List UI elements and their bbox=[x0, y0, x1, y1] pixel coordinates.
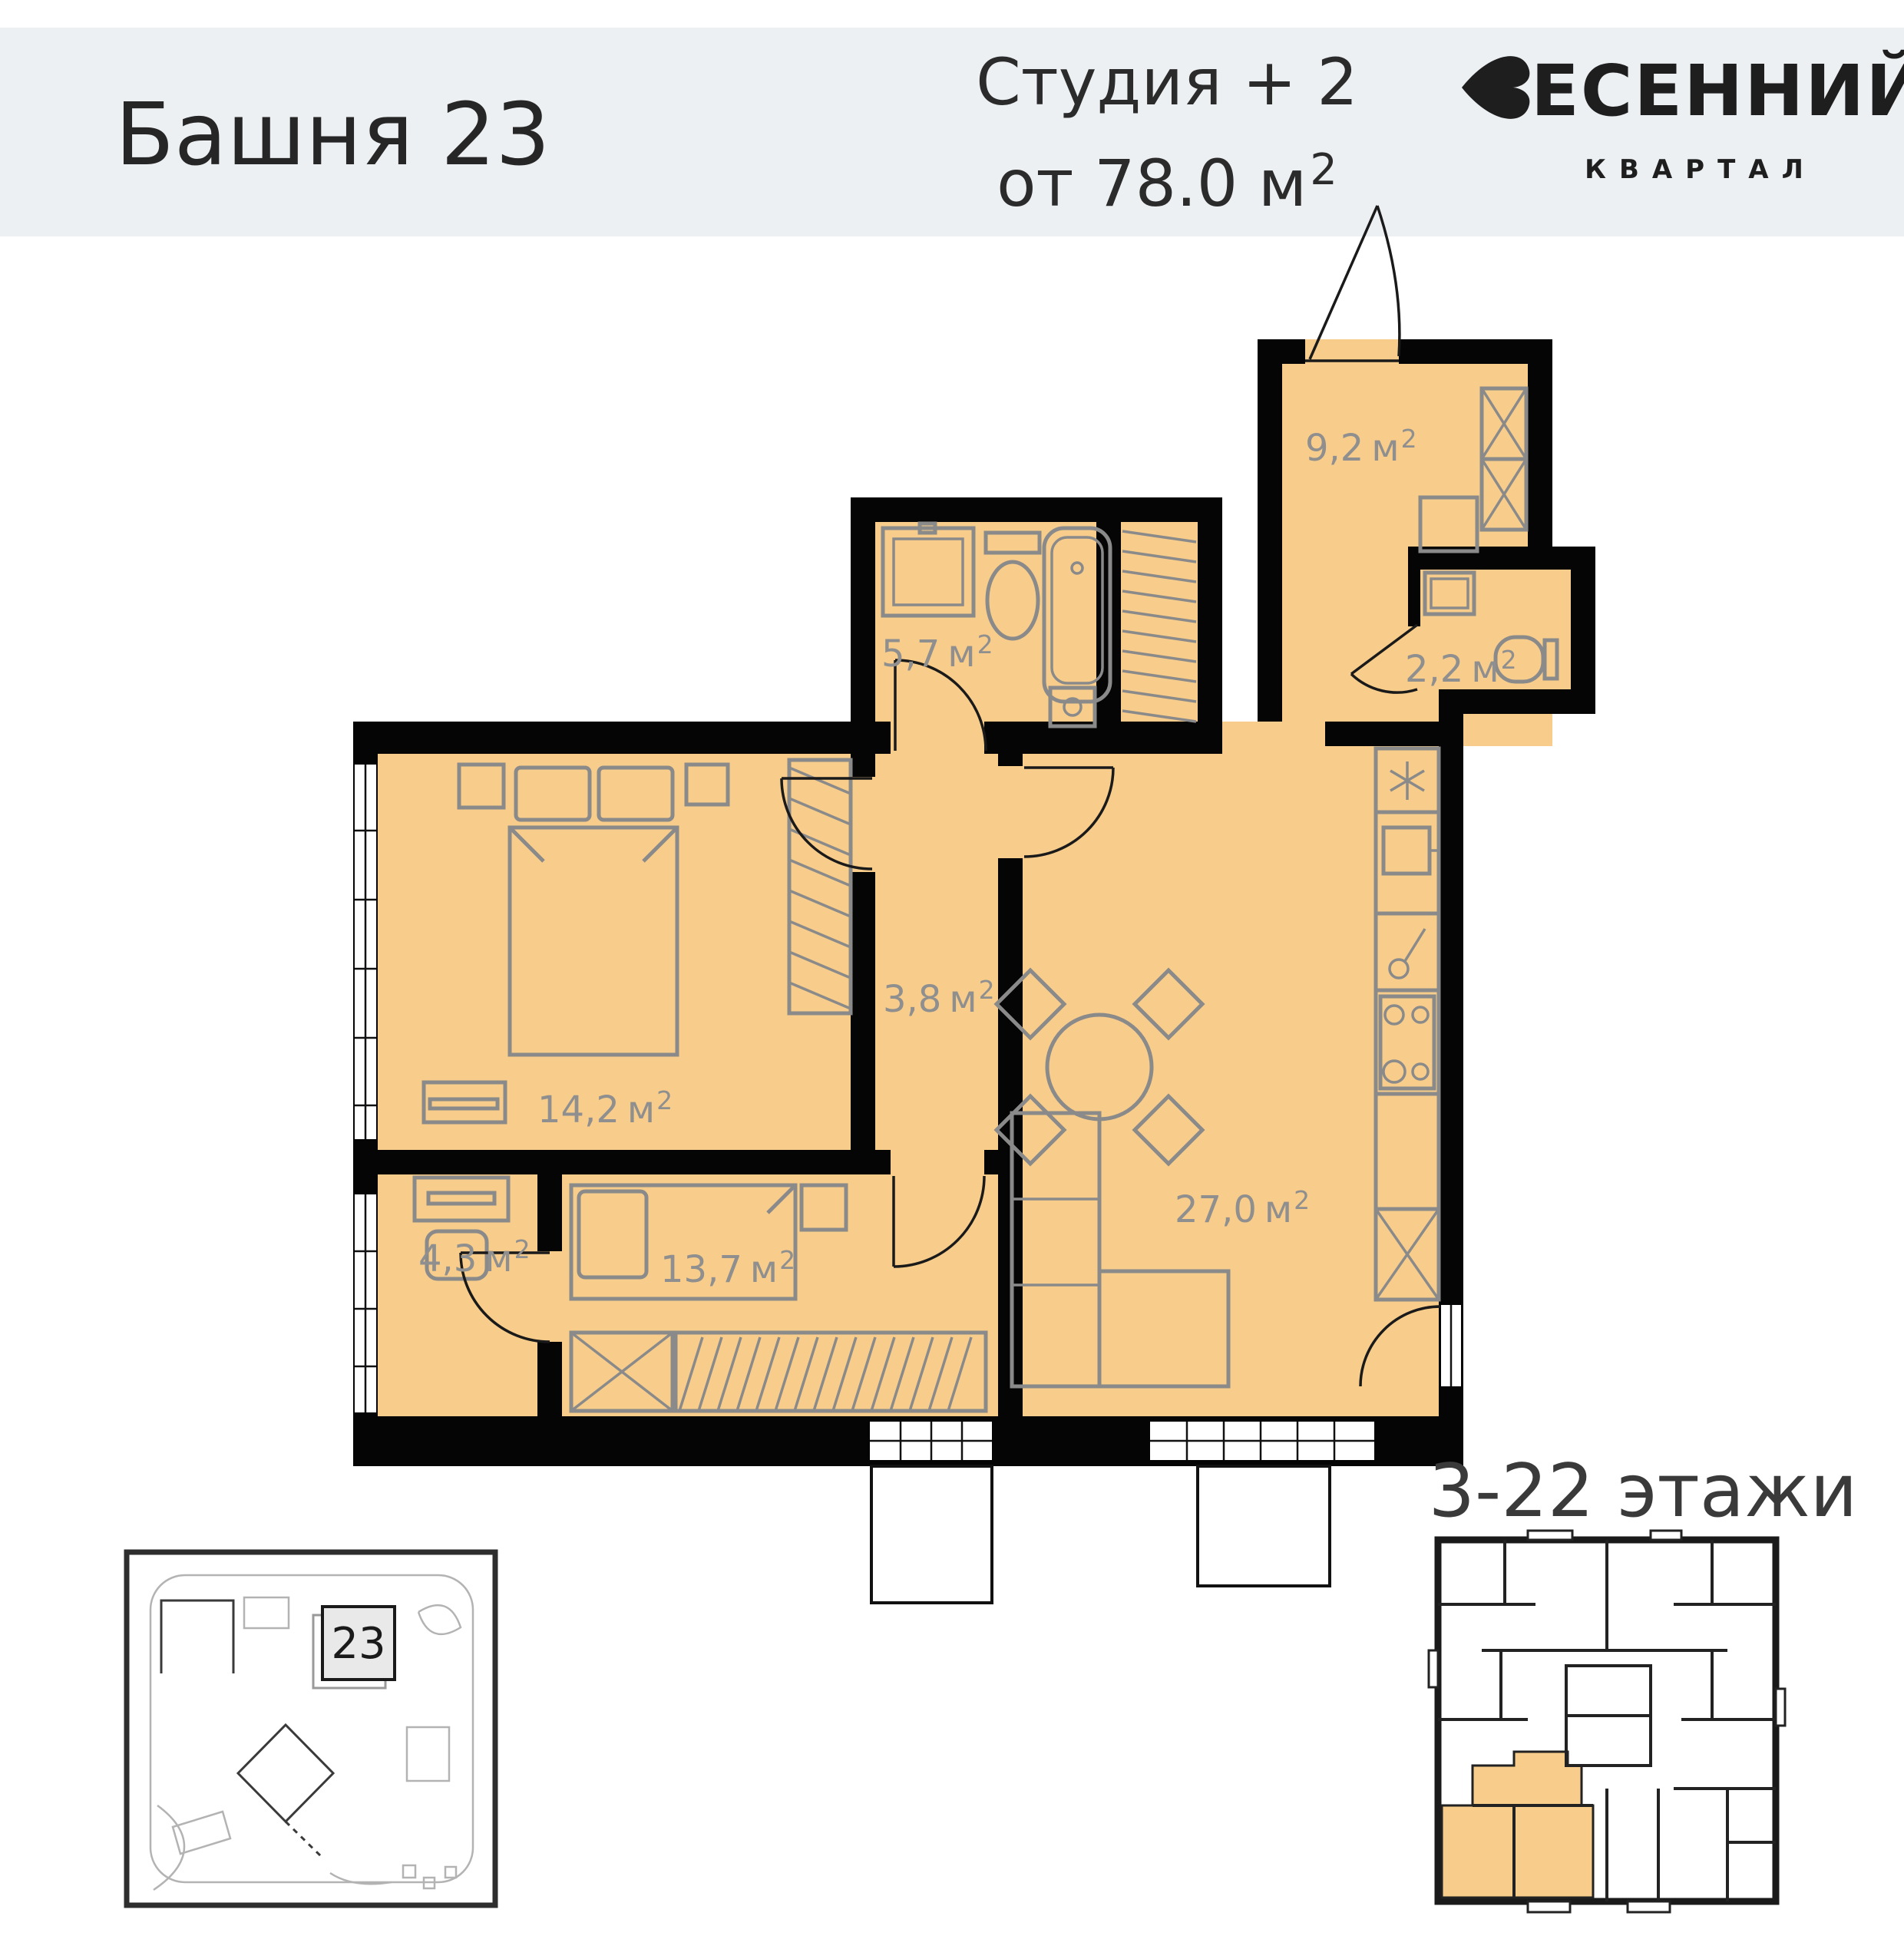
floorplan-page: Башня 23 Студия + 2 от 78.0 м2 ЕСЕННИЙ К… bbox=[0, 0, 1904, 1949]
balcony-left bbox=[871, 1466, 992, 1603]
bedroom-window bbox=[355, 765, 376, 1139]
header: Башня 23 Студия + 2 от 78.0 м2 ЕСЕННИЙ К… bbox=[0, 28, 1904, 236]
bedroom-label: 14,2м2 bbox=[537, 1085, 673, 1131]
logo-main-text: ЕСЕННИЙ bbox=[1531, 49, 1904, 132]
floorplate-section: 3-22 этажи bbox=[1429, 1449, 1858, 1912]
balcony-door-window bbox=[1441, 1305, 1461, 1386]
apartment-type: Студия + 2 bbox=[976, 45, 1358, 120]
site-marker-label: 23 bbox=[331, 1619, 385, 1669]
page-title: Башня 23 bbox=[115, 85, 550, 185]
floorplate-minimap bbox=[1429, 1531, 1785, 1912]
living-window bbox=[1150, 1422, 1374, 1460]
cabinet-window bbox=[355, 1194, 376, 1412]
apartment-area: от 78.0 м2 bbox=[997, 145, 1337, 221]
corridor-floor bbox=[851, 729, 1023, 1174]
bedroom2-label: 13,7м2 bbox=[660, 1245, 795, 1291]
bedroom2-window bbox=[870, 1422, 992, 1460]
logo-sub-text: КВАРТАЛ bbox=[1585, 154, 1816, 185]
floors-label: 3-22 этажи bbox=[1429, 1449, 1858, 1534]
balconies bbox=[871, 1466, 1330, 1603]
balcony-right bbox=[1198, 1466, 1330, 1586]
apartment-floorplan: 9,2м2 5,7м2 2,2м2 3,8м2 14,2м2 4,3м2 13,… bbox=[353, 206, 1595, 1603]
site-plan: 23 bbox=[127, 1552, 495, 1905]
living-label: 27,0м2 bbox=[1175, 1185, 1310, 1231]
